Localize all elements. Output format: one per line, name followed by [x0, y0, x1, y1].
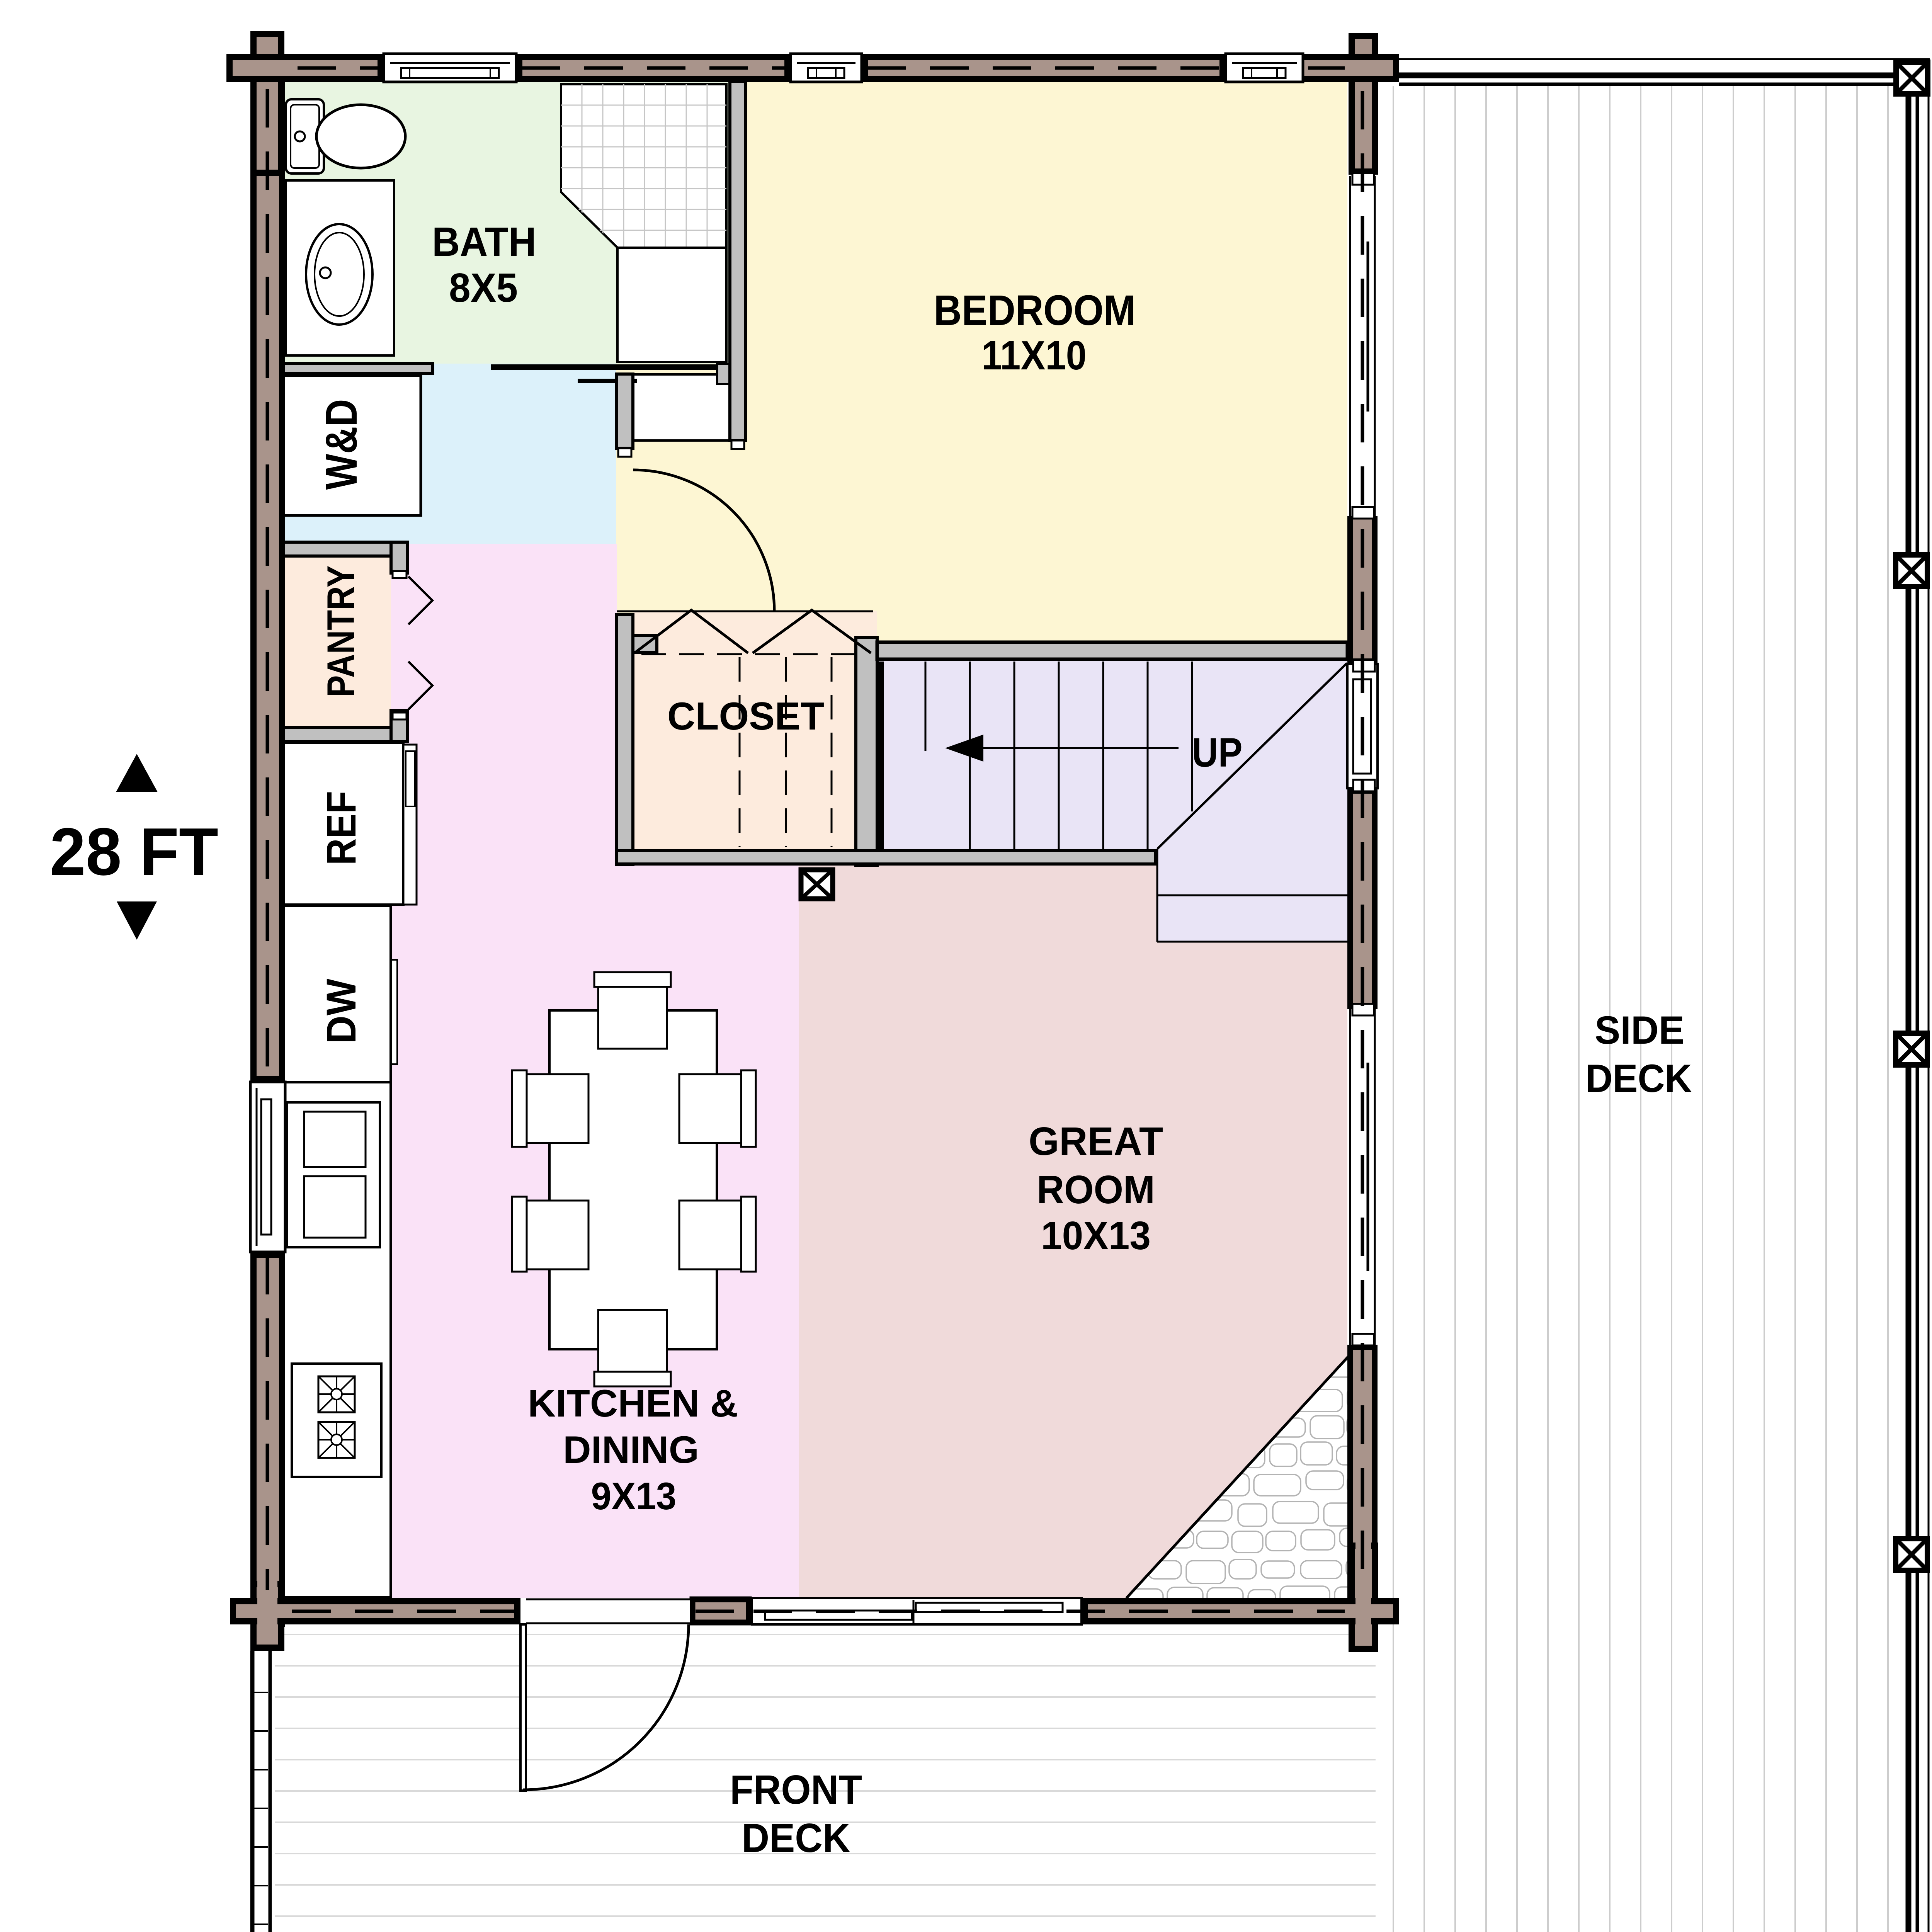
- svg-text:28 FT: 28 FT: [50, 814, 218, 889]
- svg-text:GREAT: GREAT: [1029, 1119, 1163, 1163]
- svg-text:UP: UP: [1192, 729, 1243, 776]
- svg-text:DW: DW: [318, 979, 364, 1044]
- svg-text:11X10: 11X10: [981, 333, 1087, 378]
- svg-text:ROOM: ROOM: [1037, 1167, 1155, 1212]
- svg-text:FRONT: FRONT: [730, 1767, 862, 1813]
- svg-text:KITCHEN &: KITCHEN &: [528, 1382, 738, 1425]
- svg-text:BEDROOM: BEDROOM: [934, 287, 1136, 334]
- svg-text:REF: REF: [318, 791, 364, 865]
- svg-text:SIDE: SIDE: [1595, 1008, 1684, 1052]
- svg-text:10X13: 10X13: [1041, 1213, 1151, 1258]
- svg-text:BATH: BATH: [432, 219, 536, 265]
- svg-text:DECK: DECK: [742, 1815, 850, 1861]
- svg-text:9X13: 9X13: [591, 1475, 677, 1517]
- svg-text:PANTRY: PANTRY: [319, 566, 362, 697]
- svg-text:CLOSET: CLOSET: [667, 695, 824, 738]
- svg-text:DINING: DINING: [563, 1428, 699, 1471]
- svg-text:8X5: 8X5: [449, 265, 518, 311]
- svg-text:W&D: W&D: [317, 399, 366, 490]
- svg-text:DECK: DECK: [1586, 1056, 1692, 1100]
